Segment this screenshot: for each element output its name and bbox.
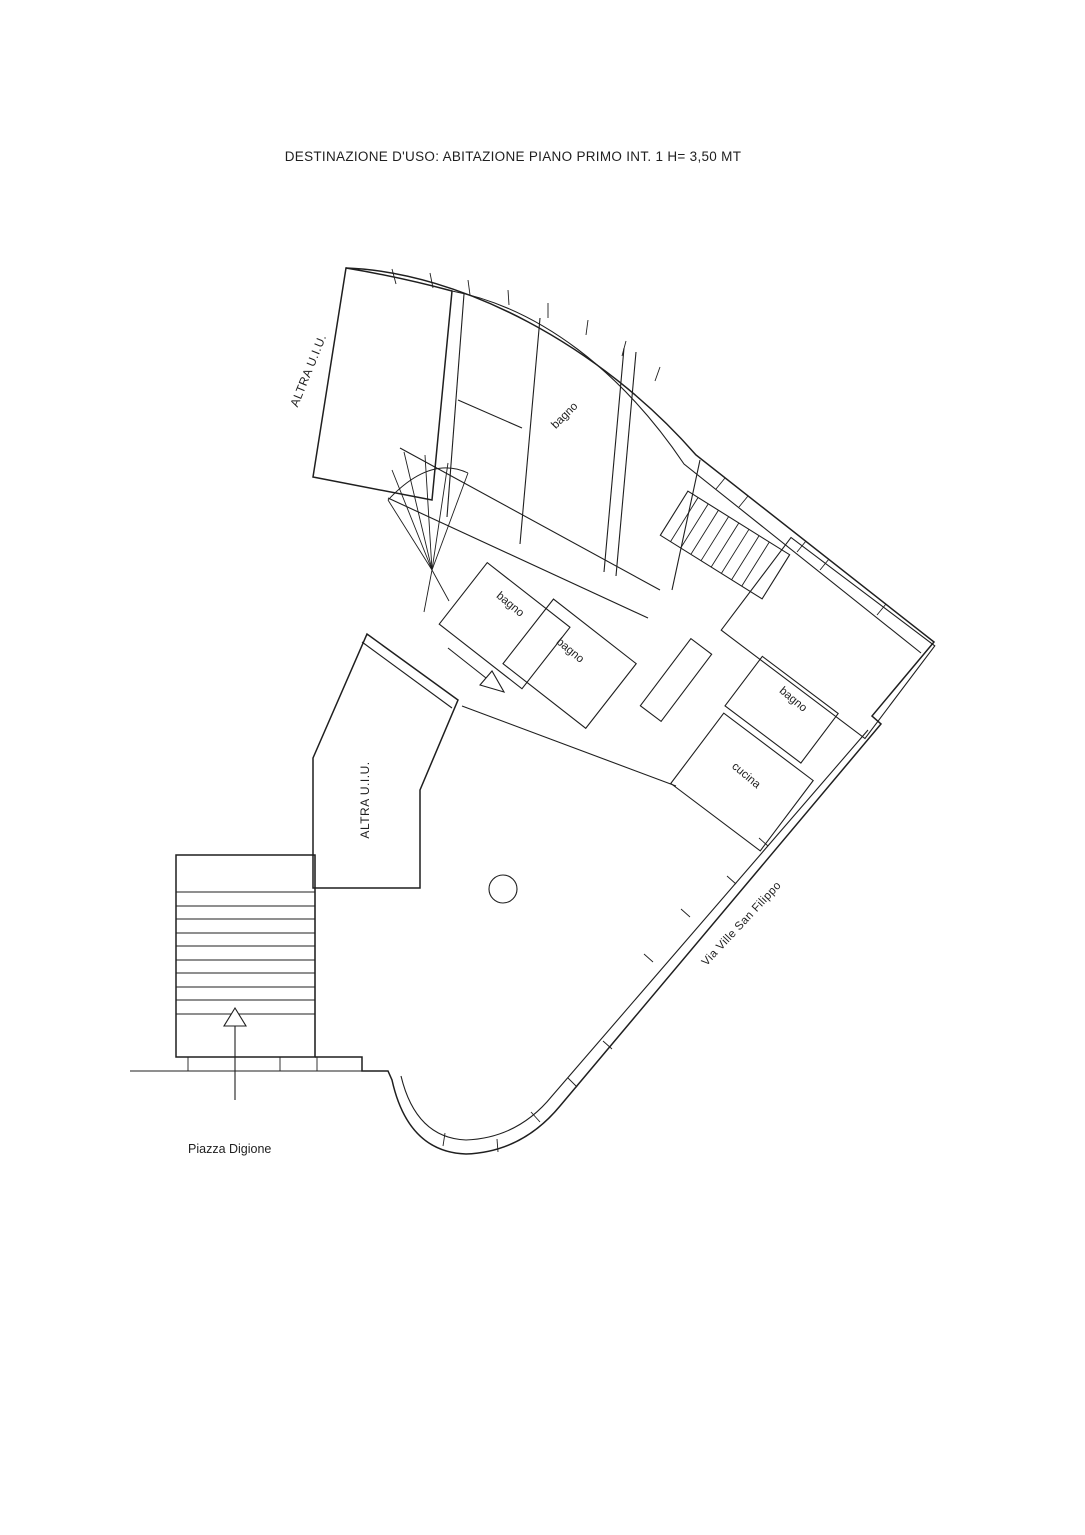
entrance-arrow bbox=[448, 648, 504, 692]
column bbox=[489, 875, 517, 903]
street-label-piazza: Piazza Digione bbox=[188, 1142, 271, 1156]
staircase-internal bbox=[660, 491, 789, 599]
living-area-walls bbox=[315, 706, 676, 1057]
room-label-bagno-right: bagno bbox=[777, 685, 809, 715]
window-ticks bbox=[392, 269, 886, 1152]
room-label-bagno-mid-left: bagno bbox=[494, 590, 526, 620]
street-arrow bbox=[224, 1008, 246, 1100]
other-unit-upper-label: ALTRA U.I.U. bbox=[287, 332, 329, 409]
floorplan-page: DESTINAZIONE D'USO: ABITAZIONE PIANO PRI… bbox=[0, 0, 1085, 1535]
other-unit-upper bbox=[313, 268, 464, 517]
room-label-bagno-mid-right: bagno bbox=[554, 636, 586, 666]
floorplan-drawing: DESTINAZIONE D'USO: ABITAZIONE PIANO PRI… bbox=[0, 0, 1085, 1535]
other-unit-lower bbox=[313, 634, 458, 888]
staircase-entrance bbox=[176, 855, 315, 1057]
room-bagno-middle-left bbox=[439, 563, 570, 689]
winder-stairs bbox=[388, 452, 468, 612]
room-label-bagno-top: bagno bbox=[549, 400, 580, 431]
other-unit-lower-label: ALTRA U.I.U. bbox=[358, 761, 372, 838]
exterior-walls bbox=[315, 268, 934, 1154]
sidewalk-lines bbox=[130, 1057, 388, 1071]
plan-title: DESTINAZIONE D'USO: ABITAZIONE PIANO PRI… bbox=[285, 149, 742, 164]
room-bagno-middle-right bbox=[503, 599, 636, 728]
room-label-cucina: cucina bbox=[729, 760, 763, 791]
room-bagno-right bbox=[725, 656, 838, 763]
duct-shaft bbox=[640, 639, 711, 722]
